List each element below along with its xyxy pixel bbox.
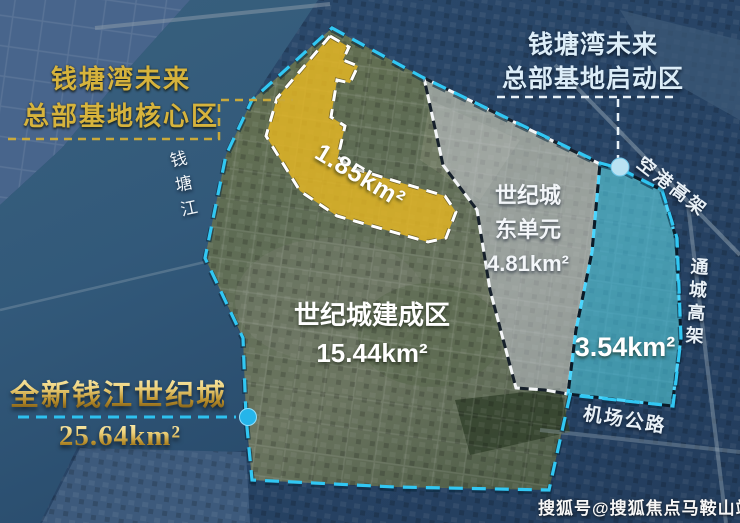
east-unit-area-value: 4.81km² [468, 247, 588, 281]
builtup-label: 世纪城建成区 15.44km² [276, 296, 468, 372]
startup-area-title: 钱塘湾未来 总部基地启动区 [480, 28, 706, 96]
watermark: 搜狐号@搜狐焦点马鞍山站 [538, 494, 740, 519]
startup-area-title-line1: 钱塘湾未来 [480, 28, 706, 62]
overall-city-name: 全新钱江世纪城 [10, 372, 224, 414]
builtup-name: 世纪城建成区 [276, 296, 468, 334]
startup-area-title-line2: 总部基地启动区 [480, 62, 706, 96]
east-unit-name-line2: 东单元 [468, 213, 588, 247]
map-canvas: 钱塘湾未来 总部基地核心区 钱塘湾未来 总部基地启动区 钱塘江 1.85km² … [0, 0, 740, 523]
startup-area-value: 3.54km² [562, 332, 688, 363]
east-unit-name-line1: 世纪城 [468, 179, 588, 213]
core-area-title-line2: 总部基地核心区 [8, 98, 234, 135]
overall-anchor-dot [240, 409, 257, 426]
core-area-title-line1: 钱塘湾未来 [8, 61, 234, 98]
east-unit-label: 世纪城 东单元 4.81km² [468, 179, 588, 281]
builtup-area-value: 15.44km² [276, 334, 468, 372]
overall-area-value: 25.64km² [38, 420, 202, 453]
core-area-title: 钱塘湾未来 总部基地核心区 [8, 61, 234, 135]
